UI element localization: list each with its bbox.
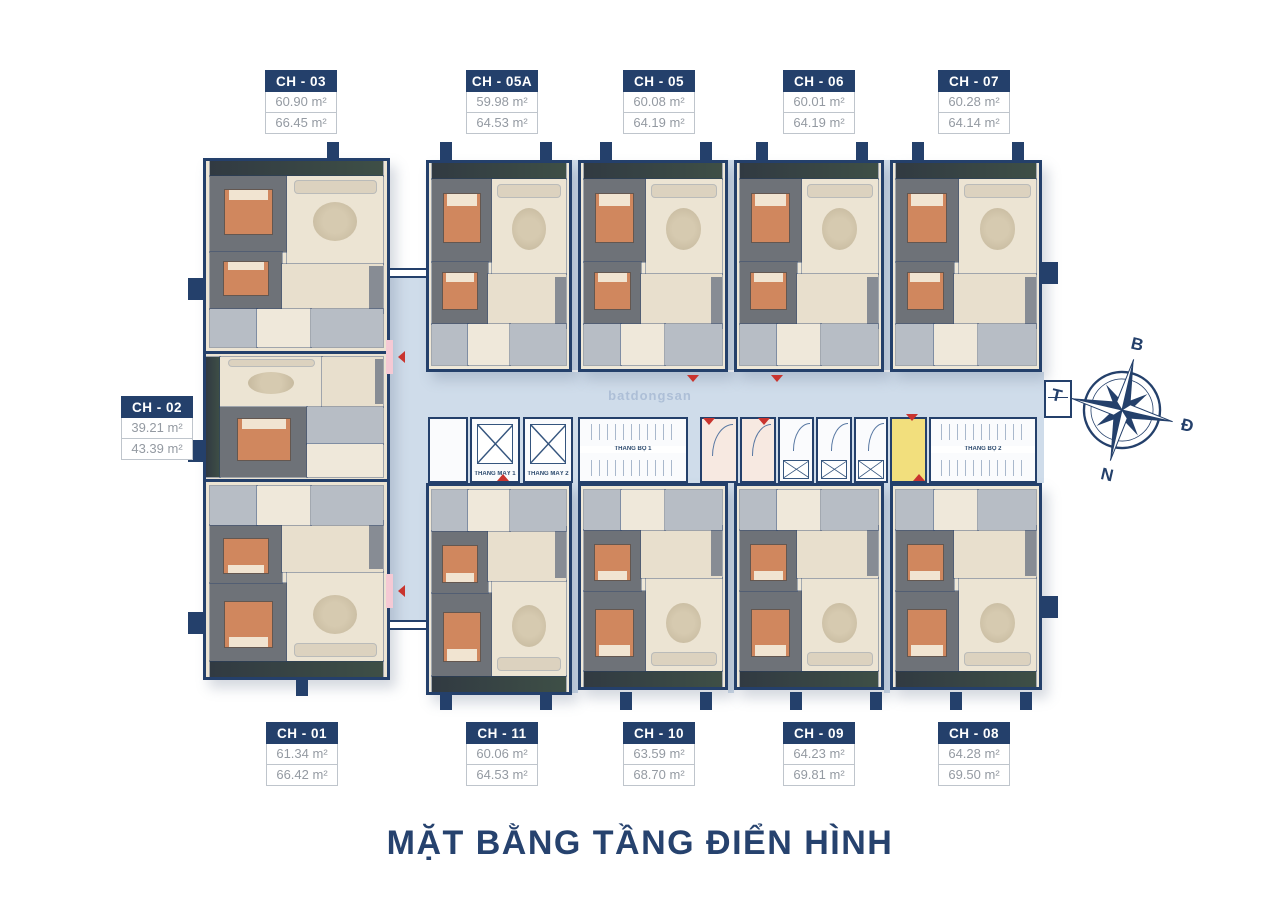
bathroom: [510, 324, 566, 365]
unit-area-row: 64.14 m²: [938, 113, 1010, 134]
stair-flight: [941, 424, 1024, 440]
kitchen: [282, 264, 383, 313]
kitchen: [488, 527, 566, 581]
bathroom: [311, 309, 383, 347]
compass-label-south: N: [1099, 464, 1115, 485]
unit-area-row: 60.28 m²: [938, 92, 1010, 113]
bathroom: [584, 490, 621, 530]
shaft-box: [783, 460, 810, 479]
door-marker-icon: [497, 474, 509, 481]
bathroom: [740, 324, 777, 365]
kitchen: [641, 274, 722, 328]
hall: [777, 324, 820, 365]
unit-area-row: 60.90 m²: [265, 92, 337, 113]
unit-area-row: 66.45 m²: [265, 113, 337, 134]
column-stub: [1020, 692, 1032, 710]
bedroom: [896, 591, 959, 671]
plan-area: THANG MÁY 1THANG MÁY 2THANG BỘ 1THANG BỘ…: [0, 0, 1280, 905]
rug: [512, 605, 546, 647]
technical-room: [854, 417, 888, 483]
door-marker-icon: [906, 414, 918, 421]
column-stub: [700, 692, 712, 710]
entry-strip: [386, 340, 393, 374]
kitchen: [641, 526, 722, 578]
balcony: [896, 163, 1036, 179]
apartment-unit-ch09: [734, 483, 884, 690]
bathroom: [665, 490, 723, 530]
bathroom: [821, 490, 879, 530]
kitchen: [488, 274, 566, 328]
apartment-unit-ch03: [206, 161, 387, 351]
corridor-slab: [388, 272, 426, 628]
door-arc: [712, 424, 733, 456]
apartment-interior: [737, 486, 881, 687]
bed: [595, 545, 630, 580]
kitchen-counter: [555, 530, 566, 578]
rug: [822, 603, 857, 644]
apartment-unit-ch05: [578, 160, 728, 372]
elevator-shaft: [477, 424, 514, 464]
living-room: [959, 179, 1036, 274]
door-marker-icon: [687, 375, 699, 382]
unit-area-row: 64.19 m²: [783, 113, 855, 134]
rug: [313, 595, 357, 634]
balcony: [584, 163, 722, 179]
bathroom: [896, 324, 934, 365]
column-stub: [440, 692, 452, 710]
unit-card-header: CH - 11: [466, 722, 538, 744]
bedroom: [432, 179, 492, 261]
stair-label: THANG BỘ 2: [931, 446, 1035, 453]
apartment-unit-ch08: [890, 483, 1042, 690]
kitchen: [954, 274, 1036, 328]
elevator-label: THANG MÁY 1: [472, 471, 518, 478]
bedroom: [896, 179, 959, 261]
unit-area-row: 43.39 m²: [121, 439, 193, 460]
bed: [751, 545, 786, 580]
bedroom: [584, 591, 646, 671]
bathroom: [510, 490, 566, 531]
unit-card-header: CH - 02: [121, 396, 193, 418]
technical-room: [816, 417, 852, 483]
kitchen-counter: [867, 529, 878, 576]
bedroom: [210, 176, 288, 252]
unit-area-row: 60.01 m²: [783, 92, 855, 113]
bed-pillow: [755, 194, 786, 205]
balcony: [432, 163, 566, 179]
unit-area-row: 68.70 m²: [623, 765, 695, 786]
living-room: [287, 176, 383, 263]
bed: [443, 273, 477, 309]
bedroom: [210, 252, 282, 309]
column-stub: [1012, 142, 1024, 160]
bathroom: [210, 309, 257, 347]
bed-pillow: [911, 645, 943, 656]
stair-flight: [941, 460, 1024, 476]
shaft-box: [858, 460, 883, 479]
bed: [444, 613, 480, 661]
kitchen: [797, 274, 878, 328]
column-stub: [950, 692, 962, 710]
apartment-interior: [893, 486, 1039, 687]
balcony: [210, 661, 384, 677]
balcony: [896, 671, 1036, 687]
kitchen: [322, 357, 384, 407]
column-stub: [856, 142, 868, 160]
hall: [468, 324, 510, 365]
unit-card-ch10: CH - 1063.59 m²68.70 m²: [623, 722, 695, 786]
bed-pillow: [910, 571, 939, 579]
elevator-2: THANG MÁY 2: [523, 417, 573, 483]
living-room: [959, 578, 1036, 670]
door-marker-icon: [771, 375, 783, 382]
sofa: [498, 185, 560, 197]
unit-card-header: CH - 08: [938, 722, 1010, 744]
elevator-shaft: [530, 424, 567, 464]
unit-area-row: 63.59 m²: [623, 744, 695, 765]
apartment-unit-ch01: [206, 479, 387, 677]
bed-pillow: [598, 571, 627, 579]
kitchen-counter: [711, 529, 722, 576]
bed: [238, 419, 290, 460]
bed-pillow: [754, 273, 783, 282]
unit-area-row: 64.28 m²: [938, 744, 1010, 765]
kitchen-counter: [375, 359, 384, 404]
bedroom: [584, 530, 642, 590]
unit-card-header: CH - 05: [623, 70, 695, 92]
unit-card-header: CH - 10: [623, 722, 695, 744]
bed-pillow: [242, 419, 286, 429]
apartment-unit-ch07: [890, 160, 1042, 372]
unit-card-header: CH - 03: [265, 70, 337, 92]
bathroom: [978, 490, 1036, 530]
bed-pillow: [599, 645, 630, 656]
sofa: [498, 658, 560, 670]
rug: [512, 208, 546, 250]
door-marker-icon: [398, 351, 405, 363]
bed-pillow: [229, 190, 268, 201]
bathroom: [307, 407, 383, 445]
bed: [224, 539, 267, 573]
apartment-unit-ch11: [426, 483, 572, 695]
bedroom: [210, 583, 288, 661]
compass-label-north: B: [1129, 334, 1145, 355]
bed: [908, 194, 946, 242]
bedroom: [896, 262, 954, 324]
door-marker-icon: [703, 418, 715, 425]
apartment-interior: [429, 486, 569, 692]
column-stub: [870, 692, 882, 710]
column-stub: [188, 612, 204, 634]
bed-pillow: [599, 194, 630, 205]
hall: [777, 490, 820, 530]
unit-area-row: 61.34 m²: [266, 744, 338, 765]
unit-card-header: CH - 09: [783, 722, 855, 744]
apartment-unit-ch10: [578, 483, 728, 690]
bedroom: [584, 262, 642, 324]
bed-pillow: [229, 637, 268, 648]
hall: [621, 490, 664, 530]
bedroom: [432, 262, 488, 324]
kitchen: [797, 526, 878, 578]
rug: [666, 208, 701, 250]
column-stub: [600, 142, 612, 160]
sofa: [808, 185, 872, 197]
bedroom: [740, 591, 802, 671]
bedroom: [896, 530, 954, 590]
bed: [596, 194, 633, 242]
unit-area-row: 64.23 m²: [783, 744, 855, 765]
column-stub: [440, 142, 452, 160]
door-marker-icon: [758, 418, 770, 425]
bed: [752, 610, 789, 657]
bathroom: [821, 324, 879, 365]
bedroom: [740, 530, 798, 590]
rug: [822, 208, 857, 250]
corridor-connector: [390, 268, 426, 278]
stair-flight: [591, 460, 676, 476]
column-stub: [790, 692, 802, 710]
column-stub: [620, 692, 632, 710]
bathroom: [311, 486, 383, 525]
bed: [225, 190, 272, 234]
bed-pillow: [228, 565, 264, 573]
balcony: [432, 676, 566, 692]
unit-card-header: CH - 06: [783, 70, 855, 92]
bed-pillow: [447, 194, 477, 205]
unit-card-header: CH - 05A: [466, 70, 538, 92]
bed: [595, 273, 630, 309]
bed-pillow: [447, 649, 477, 660]
kitchen: [954, 526, 1036, 578]
stair-flight: [591, 424, 676, 440]
bathroom: [896, 490, 934, 530]
kitchen: [282, 521, 383, 572]
bed: [752, 194, 789, 242]
living-room: [802, 578, 878, 670]
elevator-1: THANG MÁY 1: [470, 417, 520, 483]
unit-card-ch11: CH - 1160.06 m²64.53 m²: [466, 722, 538, 786]
bed: [908, 610, 946, 657]
bed-pillow: [754, 571, 783, 579]
hall: [307, 444, 383, 477]
sofa: [295, 644, 376, 656]
sofa: [295, 181, 376, 192]
apartment-interior: [206, 354, 387, 479]
staircase-2: THANG BỘ 2: [929, 417, 1037, 483]
bed-pillow: [446, 573, 474, 582]
hall: [257, 309, 311, 347]
apartment-interior: [581, 163, 725, 369]
bed: [751, 273, 786, 309]
unit-card-header: CH - 07: [938, 70, 1010, 92]
unit-area-row: 64.53 m²: [466, 765, 538, 786]
compass-label-west: T: [1052, 385, 1064, 406]
bed-pillow: [911, 194, 943, 205]
sofa: [229, 360, 314, 367]
hall: [468, 490, 510, 531]
bathroom: [665, 324, 723, 365]
column-stub: [540, 142, 552, 160]
living-room: [220, 357, 321, 407]
apartment-interior: [429, 163, 569, 369]
balcony: [740, 671, 878, 687]
bed-pillow: [910, 273, 939, 282]
unit-area-row: 69.50 m²: [938, 765, 1010, 786]
apartment-unit-ch02: [206, 351, 387, 479]
kitchen-counter: [555, 277, 566, 325]
bed: [908, 545, 943, 580]
bathroom: [432, 490, 468, 531]
door-arc: [868, 423, 885, 451]
technical-room: [778, 417, 814, 483]
door-marker-icon: [398, 585, 405, 597]
unit-card-ch07: CH - 0760.28 m²64.14 m²: [938, 70, 1010, 134]
bed: [225, 602, 272, 647]
column-stub: [540, 692, 552, 710]
unit-area-row: 60.06 m²: [466, 744, 538, 765]
apartment-interior: [581, 486, 725, 687]
apartment-interior: [737, 163, 881, 369]
door-arc: [793, 423, 811, 451]
bed-pillow: [446, 273, 474, 282]
bed: [224, 262, 267, 295]
apartment-interior: [206, 482, 387, 677]
bed: [443, 546, 477, 582]
bedroom: [220, 407, 307, 477]
bedroom: [740, 262, 798, 324]
bathroom: [978, 324, 1036, 365]
floorplan-canvas: THANG MÁY 1THANG MÁY 2THANG BỘ 1THANG BỘ…: [0, 0, 1280, 905]
bathroom: [432, 324, 468, 365]
rug: [248, 372, 295, 394]
door-marker-icon: [913, 474, 925, 481]
apartment-interior: [206, 161, 387, 351]
living-room: [646, 578, 722, 670]
unit-area-row: 59.98 m²: [466, 92, 538, 113]
shaft-box: [821, 460, 848, 479]
unit-card-ch03: CH - 0360.90 m²66.45 m²: [265, 70, 337, 134]
apartment-unit-ch05a: [426, 160, 572, 372]
bedroom: [210, 525, 282, 584]
unit-card-ch01: CH - 0161.34 m²66.42 m²: [266, 722, 338, 786]
balcony: [584, 671, 722, 687]
bedroom: [432, 531, 488, 593]
column-stub: [327, 142, 339, 160]
column-stub: [296, 678, 308, 696]
bed: [596, 610, 633, 657]
unit-area-row: 64.53 m²: [466, 113, 538, 134]
unit-area-row: 66.42 m²: [266, 765, 338, 786]
rug: [313, 202, 357, 240]
bedroom: [740, 179, 802, 261]
utility-room: [700, 417, 738, 483]
column-stub: [912, 142, 924, 160]
bedroom: [584, 179, 646, 261]
bathroom: [210, 486, 257, 525]
hall: [257, 486, 311, 525]
rug: [980, 208, 1016, 250]
column-stub: [1040, 262, 1058, 284]
living-room: [802, 179, 878, 274]
entry-strip: [386, 574, 393, 608]
compass-rose: BĐNT: [1052, 326, 1197, 496]
bed-pillow: [598, 273, 627, 282]
kitchen-counter: [711, 277, 722, 325]
living-room: [492, 179, 566, 274]
watermark: batdongsan: [540, 388, 760, 403]
apartment-interior: [893, 163, 1039, 369]
bathroom: [740, 490, 777, 530]
sofa: [965, 185, 1030, 197]
balcony: [740, 163, 878, 179]
door-arc: [752, 424, 772, 456]
bed-pillow: [755, 645, 786, 656]
living-room: [287, 572, 383, 662]
unit-card-ch05a: CH - 05A59.98 m²64.53 m²: [466, 70, 538, 134]
unit-card-ch02: CH - 0239.21 m²43.39 m²: [121, 396, 193, 460]
unit-area-row: 60.08 m²: [623, 92, 695, 113]
unit-card-ch06: CH - 0660.01 m²64.19 m²: [783, 70, 855, 134]
rug: [666, 603, 701, 644]
kitchen-counter: [369, 524, 383, 570]
bed: [444, 194, 480, 242]
plan-title: MẶT BẰNG TẦNG ĐIỂN HÌNH: [0, 824, 1280, 863]
column-stub: [700, 142, 712, 160]
apartment-block-left: [203, 158, 390, 680]
living-room: [492, 581, 566, 676]
unit-card-ch08: CH - 0864.28 m²69.50 m²: [938, 722, 1010, 786]
unit-card-header: CH - 01: [266, 722, 338, 744]
utility-room: [740, 417, 776, 483]
hall: [934, 324, 978, 365]
sofa: [652, 653, 716, 665]
kitchen-counter: [1025, 277, 1036, 325]
balcony: [206, 357, 220, 477]
sofa: [965, 653, 1030, 665]
living-room: [646, 179, 722, 274]
column-stub: [756, 142, 768, 160]
kitchen-counter: [1025, 529, 1036, 576]
kitchen-counter: [867, 277, 878, 325]
sofa: [808, 653, 872, 665]
bed: [908, 273, 943, 309]
column-stub: [1040, 596, 1058, 618]
rug: [980, 603, 1016, 644]
stair-label: THANG BỘ 1: [580, 446, 686, 453]
unit-area-row: 64.19 m²: [623, 113, 695, 134]
hall: [621, 324, 664, 365]
unit-card-ch09: CH - 0964.23 m²69.81 m²: [783, 722, 855, 786]
corridor-connector: [390, 620, 426, 630]
unit-area-row: 69.81 m²: [783, 765, 855, 786]
balcony: [210, 161, 384, 176]
bathroom: [584, 324, 621, 365]
elevator-label: THANG MÁY 2: [525, 471, 571, 478]
unit-card-ch05: CH - 0560.08 m²64.19 m²: [623, 70, 695, 134]
lobby: [428, 417, 468, 483]
compass-label-east: Đ: [1179, 415, 1195, 436]
staircase-1: THANG BỘ 1: [578, 417, 688, 483]
bedroom: [432, 593, 492, 675]
sofa: [652, 185, 716, 197]
apartment-unit-ch06: [734, 160, 884, 372]
bed-pillow: [228, 262, 264, 270]
door-arc: [831, 423, 849, 451]
hall: [934, 490, 978, 530]
unit-area-row: 39.21 m²: [121, 418, 193, 439]
column-stub: [188, 278, 204, 300]
